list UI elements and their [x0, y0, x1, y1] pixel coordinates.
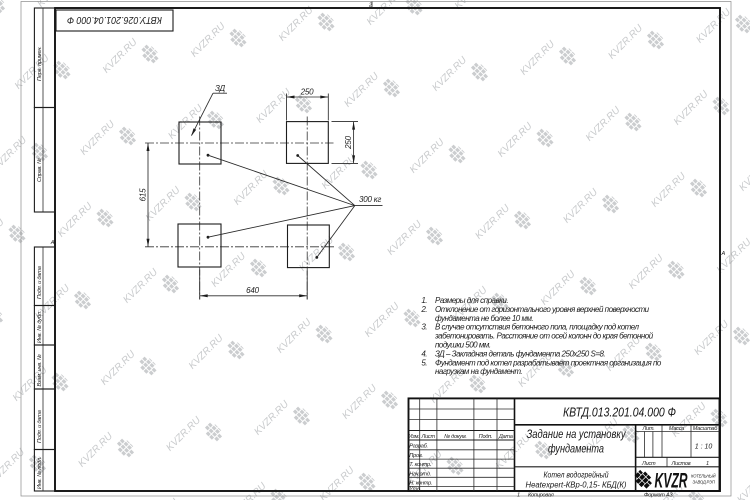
- svg-text:Лист: Лист: [420, 434, 435, 440]
- svg-text:Листов: Листов: [671, 461, 691, 467]
- svg-text:Heatexpert-КВр-0,15- КБД(К): Heatexpert-КВр-0,15- КБД(К): [526, 479, 627, 489]
- svg-text:KVZR: KVZR: [655, 470, 688, 493]
- svg-text:Задание на установку: Задание на установку: [527, 429, 627, 441]
- svg-text:КОТЕЛЬНЫЙ: КОТЕЛЬНЫЙ: [691, 473, 716, 478]
- svg-text:забетонировать. Расстояние от: забетонировать. Расстояние от осей колон…: [434, 332, 654, 341]
- svg-text:Масса: Масса: [669, 426, 684, 432]
- svg-text:Нач.отд.: Нач.отд.: [409, 471, 431, 477]
- svg-text:Копировал: Копировал: [528, 493, 555, 499]
- svg-text:Инв. № подл.: Инв. № подл.: [37, 457, 43, 489]
- svg-text:Пров.: Пров.: [409, 453, 423, 459]
- svg-text:Дата: Дата: [498, 434, 513, 440]
- svg-text:Размеры для справки.: Размеры для справки.: [435, 296, 508, 305]
- svg-text:Лист: Лист: [641, 461, 656, 467]
- svg-text:Перв. примен.: Перв. примен.: [37, 46, 43, 81]
- svg-text:ЗД – Закладная деталь фундамен: ЗД – Закладная деталь фундамента 250х250…: [435, 349, 605, 358]
- svg-text:640: 640: [246, 286, 259, 295]
- svg-text:1 : 10: 1 : 10: [695, 444, 713, 451]
- svg-text:250: 250: [344, 135, 353, 149]
- svg-text:Утв.: Утв.: [408, 486, 421, 492]
- svg-text:Котел водогрейный: Котел водогрейный: [544, 469, 609, 479]
- svg-text:1.: 1.: [421, 296, 427, 305]
- svg-text:нагрузкам на фундамент.: нагрузкам на фундамент.: [435, 367, 522, 376]
- svg-text:Подп. и дата: Подп. и дата: [37, 410, 43, 443]
- svg-text:Формат А3: Формат А3: [644, 493, 673, 499]
- svg-text:А: А: [50, 240, 55, 246]
- svg-text:№ докум.: № докум.: [444, 434, 467, 440]
- svg-text:4.: 4.: [421, 349, 427, 358]
- svg-text:Отклонение от горизонтального: Отклонение от горизонтального уровня вер…: [435, 305, 650, 314]
- svg-text:Разраб.: Разраб.: [409, 444, 428, 450]
- svg-text:А: А: [721, 251, 726, 257]
- svg-text:подушки 500 мм.: подушки 500 мм.: [435, 341, 491, 350]
- svg-text:КВТД.013.201.04.000 Ф: КВТД.013.201.04.000 Ф: [563, 405, 676, 420]
- svg-text:5.: 5.: [421, 358, 427, 367]
- svg-text:2.: 2.: [420, 305, 427, 314]
- svg-text:Т. контр.: Т. контр.: [409, 462, 431, 468]
- svg-text:Подп.: Подп.: [479, 434, 493, 440]
- svg-text:Лит.: Лит.: [641, 426, 654, 432]
- svg-text:ЗАВОД РЭП: ЗАВОД РЭП: [693, 479, 715, 484]
- svg-text:1: 1: [517, 493, 520, 499]
- svg-text:фундамента не более 10 мм.: фундамента не более 10 мм.: [435, 314, 533, 323]
- svg-text:Масштаб: Масштаб: [693, 426, 718, 432]
- svg-text:Справ. №: Справ. №: [37, 158, 43, 182]
- svg-text:ЗД: ЗД: [215, 84, 225, 93]
- svg-text:300 кг: 300 кг: [359, 195, 381, 204]
- svg-text:Изм.: Изм.: [409, 434, 420, 440]
- svg-text:фундамента: фундамента: [548, 443, 604, 455]
- svg-text:250: 250: [300, 88, 314, 97]
- svg-text:Подп. и дата: Подп. и дата: [37, 266, 43, 299]
- svg-text:1: 1: [706, 461, 709, 467]
- svg-text:В случае отсутствия бетонного: В случае отсутствия бетонного пола, площ…: [435, 323, 639, 332]
- svg-text:Инв. № дубл.: Инв. № дубл.: [37, 311, 43, 343]
- svg-text:КВТУ.026.201.04.000 Ф: КВТУ.026.201.04.000 Ф: [67, 14, 162, 26]
- svg-text:615: 615: [139, 188, 148, 201]
- svg-text:3.: 3.: [421, 323, 427, 332]
- svg-text:Взам. инв. №: Взам. инв. №: [37, 354, 43, 386]
- svg-text:Фундамент под котел разрабатыв: Фундамент под котел разрабатывает проект…: [435, 358, 662, 367]
